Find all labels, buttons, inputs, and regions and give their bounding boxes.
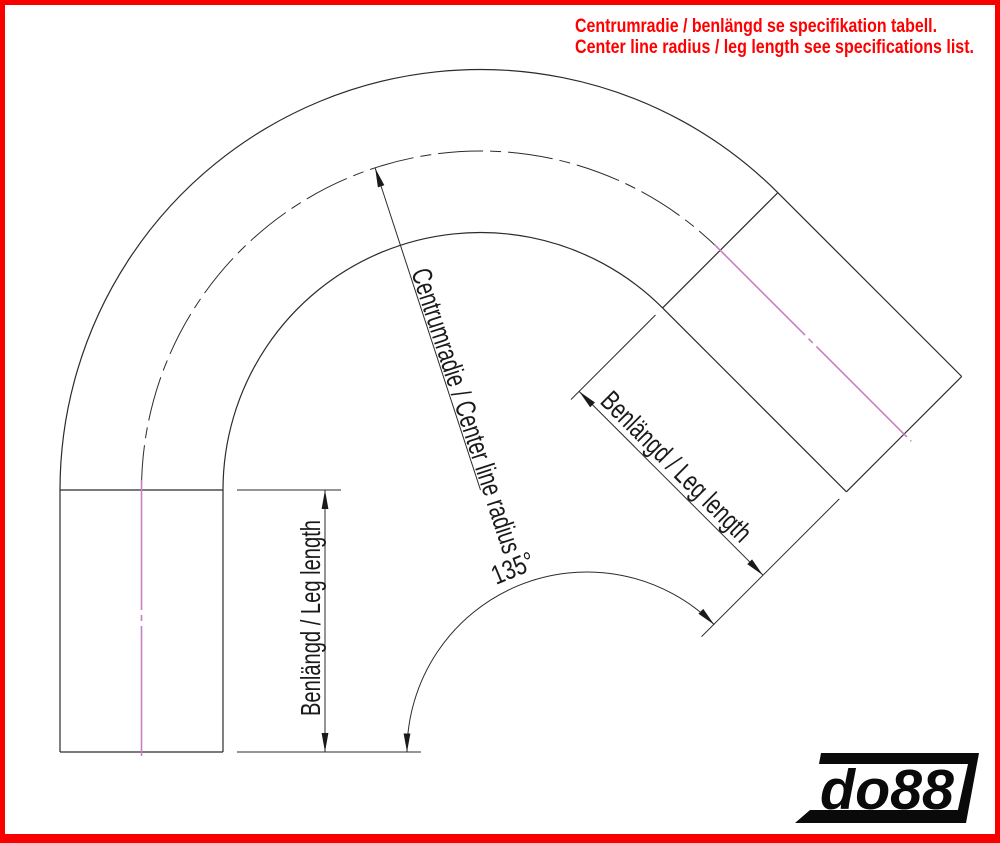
angle-dim-arrow-right [698, 609, 714, 625]
right-leg-dimension: Benlängd / Leg length [571, 315, 839, 637]
center-lines [142, 151, 912, 761]
left-dim-arrow-down [322, 733, 329, 752]
right-leg-centerline [715, 245, 912, 442]
right-dim-line [579, 391, 763, 575]
radius-dim-arrow [375, 168, 384, 187]
right-dim-extension-start [571, 315, 656, 400]
pipe-outline [60, 69, 962, 752]
note-line-swedish: Centrumradie / benlängd se specifikation… [575, 16, 937, 37]
left-leg-dimension: Benlängd / Leg length [237, 490, 421, 752]
do88-logo-text: do88 [820, 758, 954, 822]
drawing-page: Benlängd / Leg length Benlängd / Leg len… [0, 0, 1000, 843]
left-leg-length-label: Benlängd / Leg length [295, 520, 326, 716]
angle-dim-arc [407, 572, 714, 752]
right-leg-outer-edge [778, 193, 962, 377]
radius-dimension: Centrumradie / Center line radius [375, 168, 527, 557]
bend-angle-label: 135° [487, 546, 539, 591]
right-leg-length-label: Benlängd / Leg length [595, 385, 758, 548]
angle-dimension: 135° [404, 546, 715, 752]
angle-dim-arrow-left [404, 734, 411, 753]
specification-note: Centrumradie / benlängd se specifikation… [575, 16, 974, 58]
note-line-english: Center line radius / leg length see spec… [575, 37, 974, 58]
bend-drawing-canvas: Benlängd / Leg length Benlängd / Leg len… [0, 0, 1000, 843]
center-radius-label: Centrumradie / Center line radius [405, 264, 527, 557]
do88-logo: do88 [795, 753, 979, 823]
left-dim-arrow-up [322, 490, 329, 509]
